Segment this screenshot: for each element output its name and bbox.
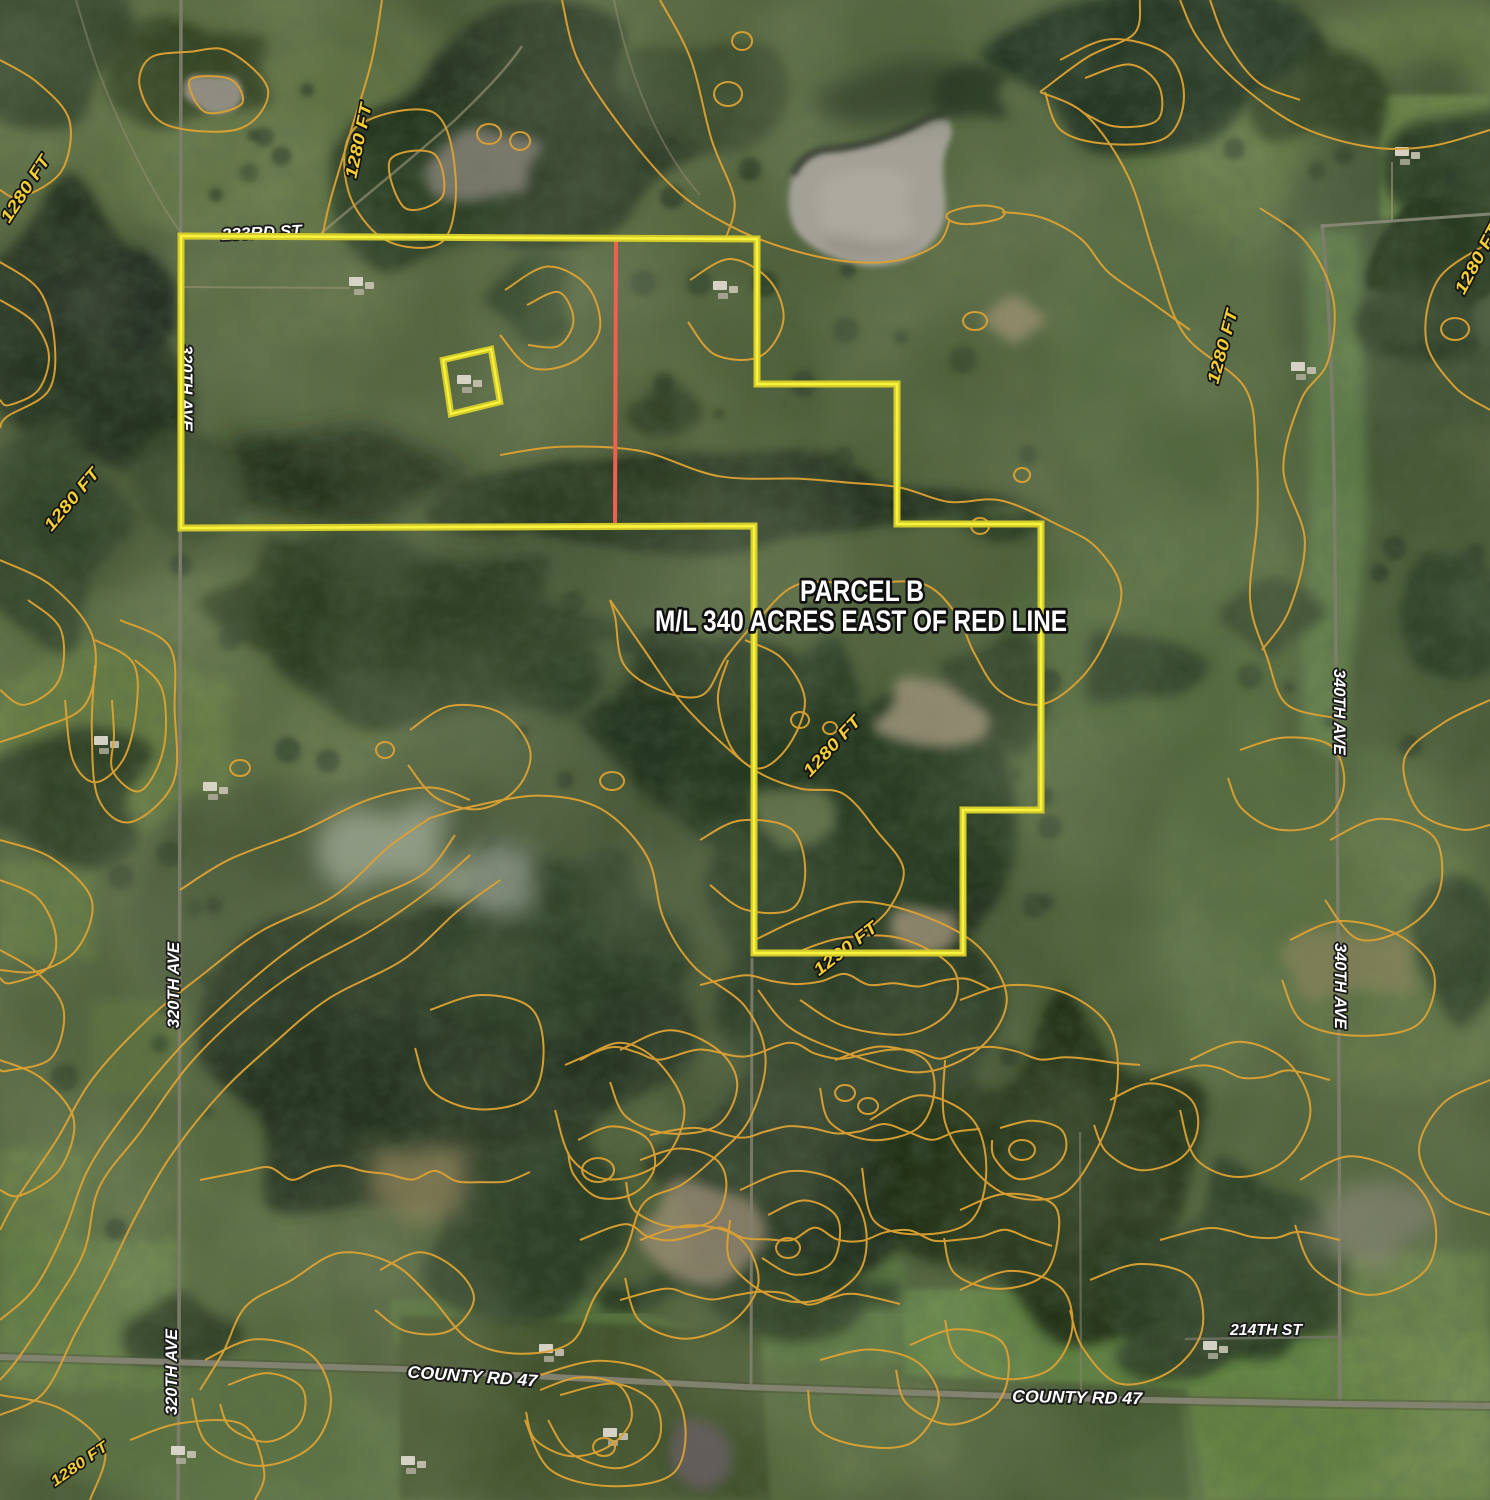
- svg-text:320TH AVE: 320TH AVE: [165, 941, 183, 1028]
- svg-text:340TH AVE: 340TH AVE: [1330, 669, 1348, 756]
- svg-text:M/L 340 ACRES EAST OF RED LINE: M/L 340 ACRES EAST OF RED LINE: [655, 605, 1067, 638]
- svg-text:320TH AVE: 320TH AVE: [163, 1328, 181, 1415]
- svg-text:214TH ST: 214TH ST: [1229, 1322, 1303, 1339]
- svg-text:PARCEL B: PARCEL B: [800, 575, 924, 608]
- svg-text:COUNTY RD 47: COUNTY RD 47: [1012, 1387, 1144, 1408]
- svg-text:340TH AVE: 340TH AVE: [1331, 943, 1349, 1030]
